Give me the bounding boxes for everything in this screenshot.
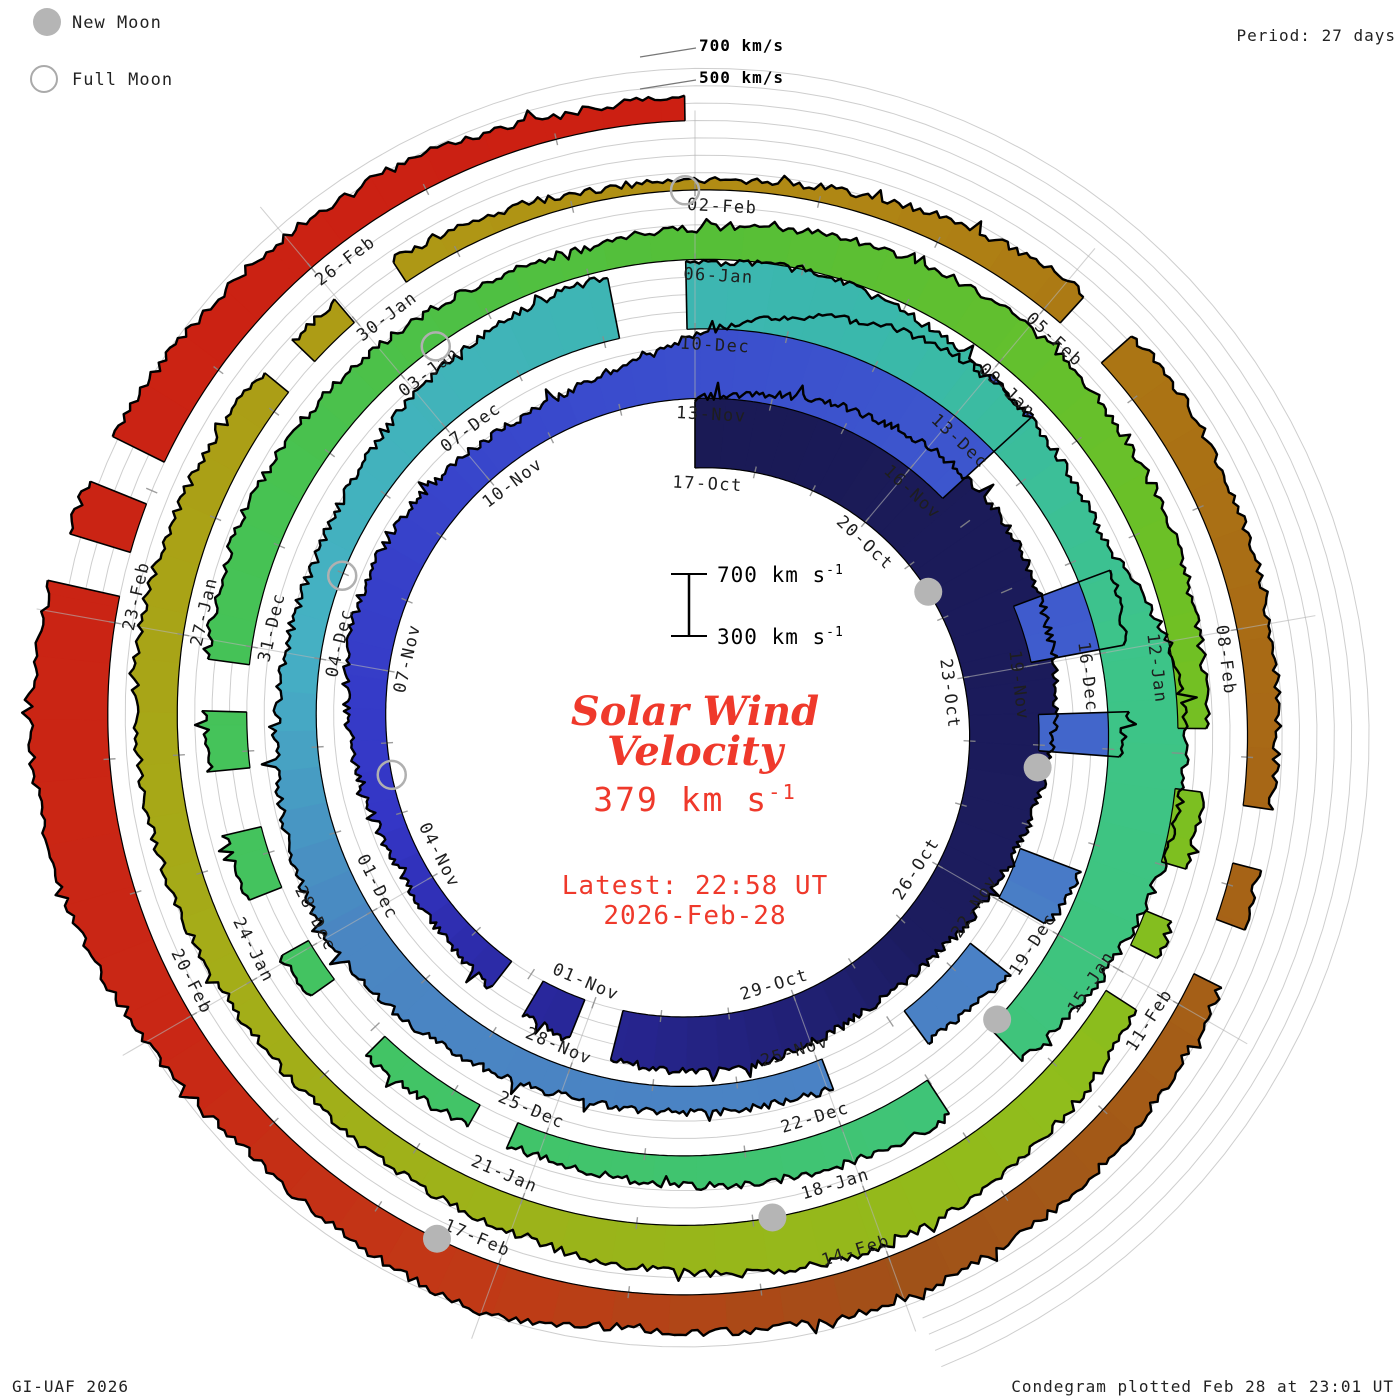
date-label-06-Jan: 06-Jan	[683, 264, 754, 288]
plot-title-line1: Solar Wind	[455, 692, 935, 732]
axis-label-700: 700 km/s	[699, 36, 784, 55]
new-moon-marker	[914, 578, 942, 606]
latest-speed-value: 379 km s	[593, 780, 768, 819]
scale-bar-top-text: 700 km s	[717, 563, 826, 587]
scale-bar-bottom-text: 300 km s	[717, 625, 826, 649]
new-moon-icon	[33, 8, 61, 36]
date-label-16-Dec: 16-Dec	[1073, 641, 1101, 713]
date-label-17-Oct: 17-Oct	[672, 472, 743, 496]
new-moon-marker	[983, 1006, 1011, 1034]
center-annotation: Solar Wind Velocity 379 km s-1 Latest: 2…	[455, 692, 935, 931]
date-label-23-Oct: 23-Oct	[935, 658, 963, 730]
plot-title-line2: Velocity	[455, 732, 935, 772]
legend-full-moon-label: Full Moon	[72, 70, 173, 90]
date-label-13-Nov: 13-Nov	[676, 403, 747, 427]
new-moon-marker	[758, 1203, 786, 1231]
axis-label-500: 500 km/s	[699, 68, 784, 87]
latest-time-line: Latest: 22:58 UT	[455, 871, 935, 901]
new-moon-marker	[423, 1225, 451, 1253]
plotted-label: Condegram plotted Feb 28 at 23:01 UT	[1011, 1377, 1394, 1396]
latest-speed: 379 km s-1	[455, 780, 935, 819]
scale-bar-bottom-exp: -1	[826, 625, 844, 640]
date-label-10-Dec: 10-Dec	[679, 334, 750, 358]
legend-new-moon-label: New Moon	[72, 13, 162, 33]
date-label-25-Dec: 25-Dec	[495, 1087, 568, 1133]
new-moon-marker	[1024, 753, 1052, 781]
latest-date-line: 2026-Feb-28	[455, 901, 935, 931]
latest-speed-exp: -1	[768, 780, 797, 804]
date-label-08-Feb: 08-Feb	[1211, 624, 1239, 696]
scale-bar-top-label: 700 km s-1	[717, 563, 844, 587]
condegram-page: 17-Oct20-Oct23-Oct26-Oct29-Oct01-Nov04-N…	[0, 0, 1400, 1400]
period-label: Period: 27 days	[1237, 26, 1397, 45]
full-moon-icon	[30, 65, 58, 93]
credit-label: GI-UAF 2026	[12, 1377, 129, 1396]
scale-bar-bottom-label: 300 km s-1	[717, 625, 844, 649]
scale-bar-top-exp: -1	[826, 563, 844, 578]
